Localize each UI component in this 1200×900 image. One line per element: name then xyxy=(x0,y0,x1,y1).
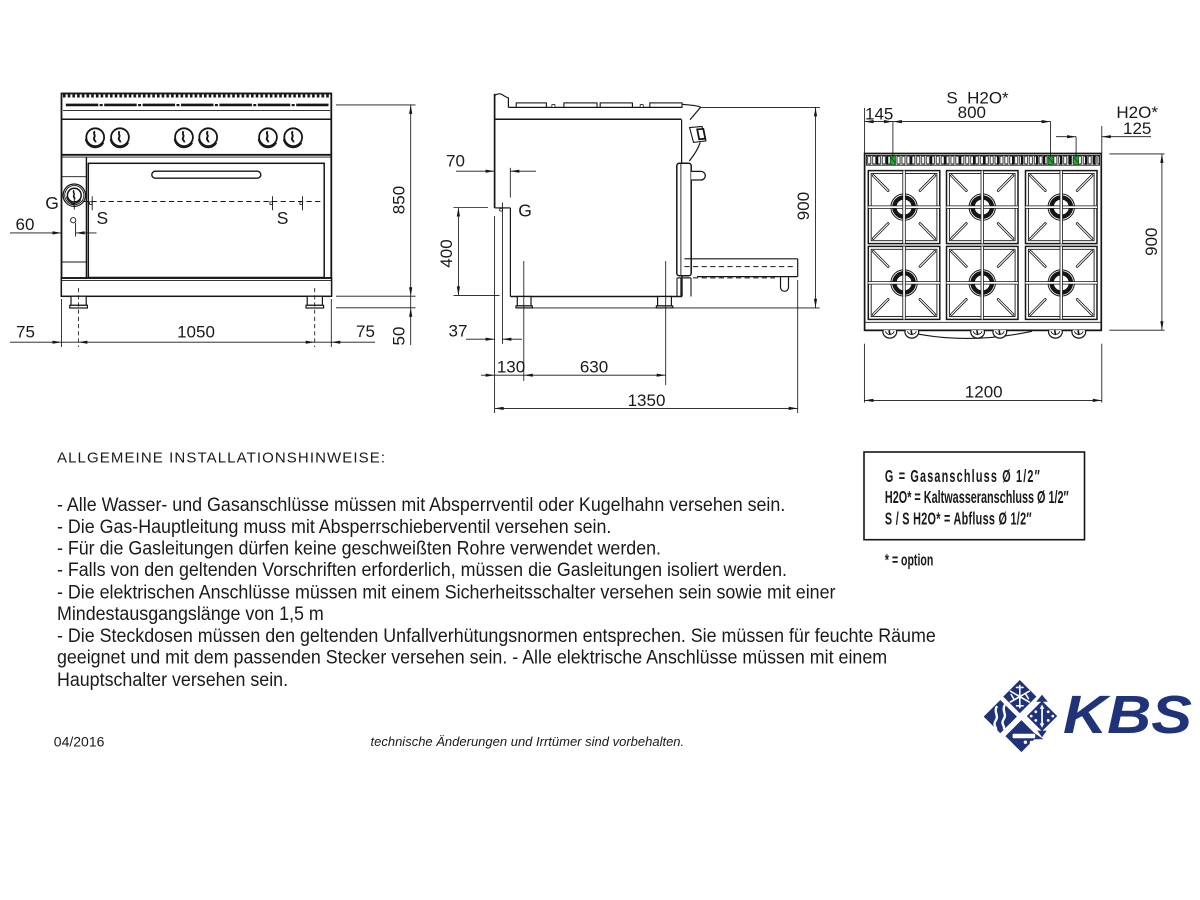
svg-text:75: 75 xyxy=(356,322,375,341)
svg-text:400: 400 xyxy=(437,239,456,267)
svg-text:H2O*: H2O* xyxy=(1116,103,1158,122)
svg-text:S / S H2O* = Abfluss Ø 1/2″: S / S H2O* = Abfluss Ø 1/2″ xyxy=(885,510,1032,529)
svg-text:900: 900 xyxy=(794,192,813,220)
svg-text:Mindestausgangslänge von 1,5 m: Mindestausgangslänge von 1,5 m xyxy=(57,602,324,624)
svg-text:1050: 1050 xyxy=(177,323,215,342)
svg-text:ALLGEMEINE INSTALLATIONSHINWEI: ALLGEMEINE INSTALLATIONSHINWEISE: xyxy=(57,450,386,467)
svg-text:G: G xyxy=(518,201,532,221)
svg-text:50: 50 xyxy=(390,327,409,346)
svg-text:* = option: * = option xyxy=(885,550,933,569)
svg-text:60: 60 xyxy=(16,215,35,234)
svg-text:S: S xyxy=(277,208,289,228)
svg-text:S: S xyxy=(97,208,109,228)
svg-text:- Die Gas-Hauptleitung muss mi: - Die Gas-Hauptleitung muss mit Absperrs… xyxy=(57,516,611,538)
svg-text:630: 630 xyxy=(580,358,608,377)
svg-text:- Die Steckdosen müssen den ge: - Die Steckdosen müssen den geltenden Un… xyxy=(57,625,936,647)
svg-text:75: 75 xyxy=(16,323,35,342)
svg-text:G: G xyxy=(45,193,59,213)
svg-text:1200: 1200 xyxy=(965,382,1003,401)
svg-text:900: 900 xyxy=(1142,228,1161,256)
svg-text:- Falls von den geltenden Vors: - Falls von den geltenden Vorschriften e… xyxy=(57,559,787,581)
svg-text:1350: 1350 xyxy=(628,391,666,410)
svg-text:H2O* = Kaltwasseranschluss Ø 1: H2O* = Kaltwasseranschluss Ø 1/2″ xyxy=(885,489,1069,508)
svg-text:37: 37 xyxy=(449,322,468,341)
svg-text:geeignet und mit dem passenden: geeignet und mit dem passenden Stecker v… xyxy=(57,646,887,668)
svg-text:- Alle Wasser- und Gasanschlüs: - Alle Wasser- und Gasanschlüsse müssen … xyxy=(57,493,785,515)
svg-text:G = Gasanschluss Ø 1/2″: G = Gasanschluss Ø 1/2″ xyxy=(885,467,1041,486)
svg-text:Hauptschalter versehen sein.: Hauptschalter versehen sein. xyxy=(57,668,288,690)
svg-text:04/2016: 04/2016 xyxy=(54,734,105,750)
svg-text:S H2O*: S H2O* xyxy=(946,89,1009,108)
svg-text:850: 850 xyxy=(390,186,409,214)
svg-text:130: 130 xyxy=(497,358,525,377)
svg-text:technische Änderungen und Irrt: technische Änderungen und Irrtümer sind … xyxy=(371,734,685,749)
svg-text:- Für die Gasleitungen dürfen: - Für die Gasleitungen dürfen keine gesc… xyxy=(57,537,661,559)
svg-text:- Die elektrischen Anschlüsse: - Die elektrischen Anschlüsse müssen mit… xyxy=(57,581,836,603)
svg-text:KBS: KBS xyxy=(1063,686,1192,745)
svg-text:145: 145 xyxy=(865,105,893,124)
svg-text:70: 70 xyxy=(446,152,465,171)
